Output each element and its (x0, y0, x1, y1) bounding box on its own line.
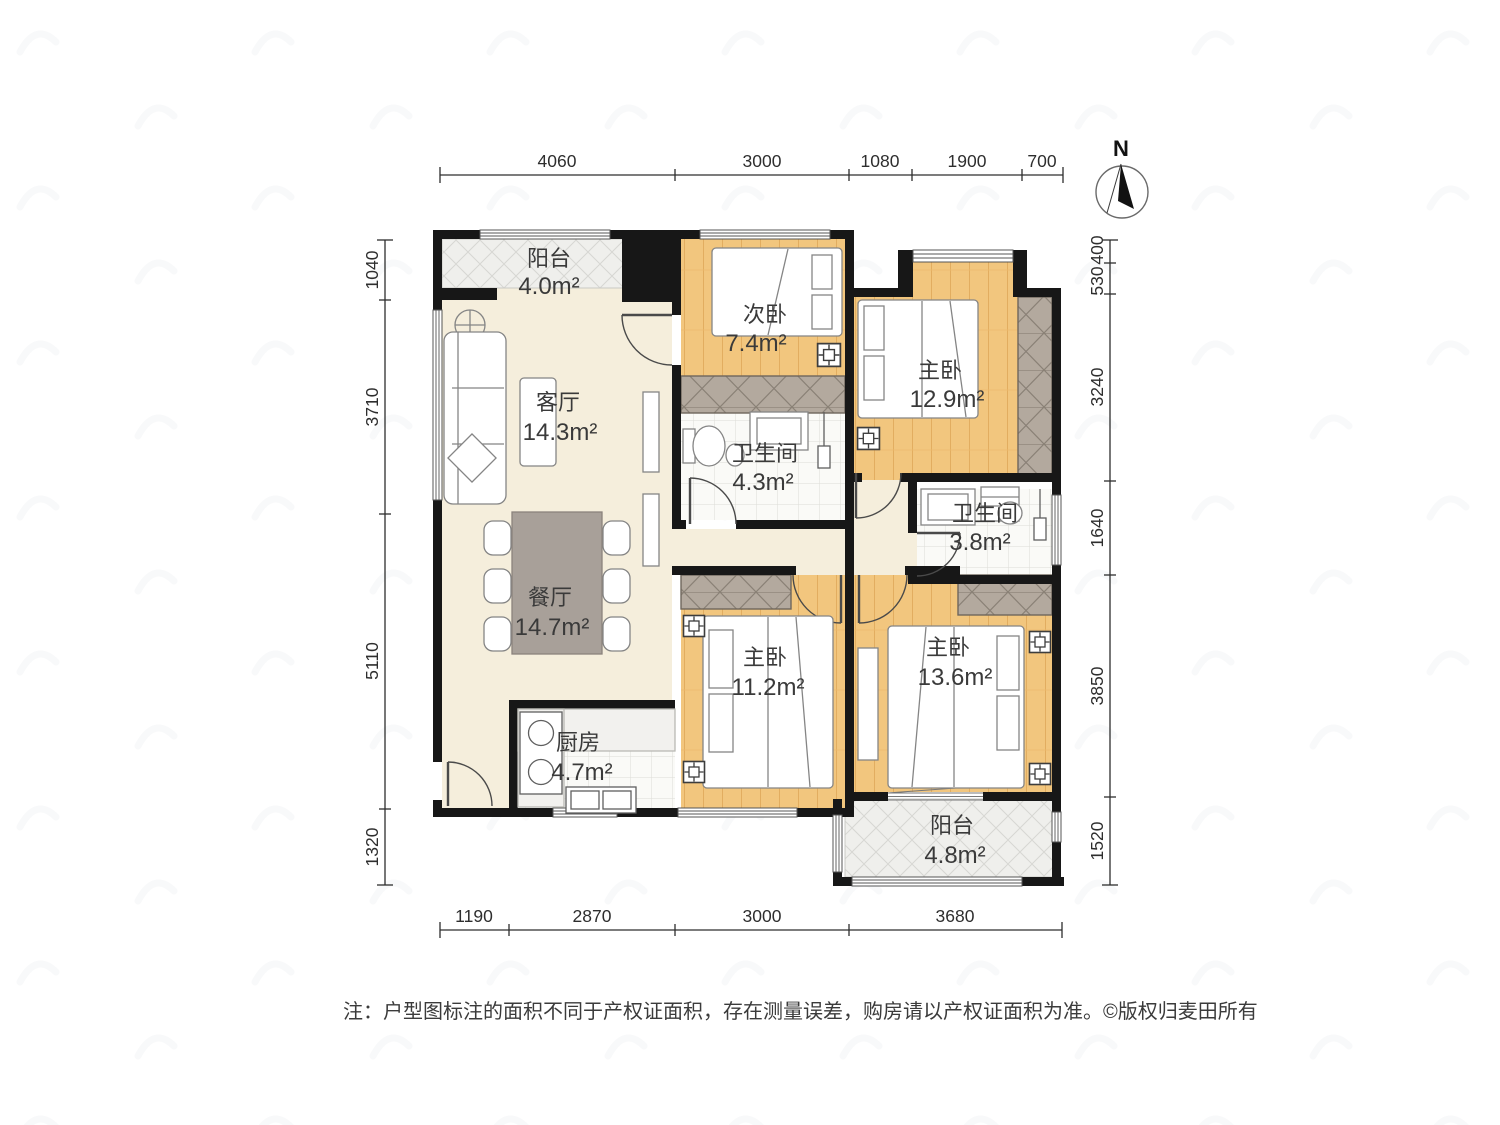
wardrobe-master-a (1018, 297, 1052, 480)
room-area-dining-room: 14.7m² (515, 614, 590, 641)
nightstand-icon (858, 428, 880, 450)
master-bedroom-a-baywindow-floor (913, 261, 1013, 301)
room-area-bathroom-a: 4.3m² (732, 469, 793, 496)
window-balcony-top (480, 230, 610, 239)
pillow (709, 630, 733, 688)
dresser (858, 648, 878, 760)
dim-left-1: 3710 (362, 387, 382, 426)
nightstand-icon (684, 616, 705, 637)
tv-cabinet (643, 392, 659, 472)
window-balcony-bottom-left (833, 815, 842, 872)
floor-plan-page: 阳台 4.0m² 次卧 7.4m² 主卧 12.9m² 客厅 14.3m² 卫生… (0, 0, 1500, 1125)
window-master-b (678, 808, 797, 817)
window-bathroom-b (1052, 495, 1061, 565)
nightstand-icon (818, 344, 841, 367)
dim-right-3: 1640 (1087, 508, 1107, 547)
room-label-balcony-bottom: 阳台 (930, 813, 974, 838)
room-area-balcony-top: 4.0m² (518, 273, 579, 300)
window-master-a-bay (913, 250, 1013, 262)
pillow (997, 696, 1019, 750)
dim-left-3: 1320 (362, 827, 382, 866)
copyright-note: ©版权归麦田所有 (1103, 995, 1258, 1024)
toilet-icon (693, 426, 725, 466)
wardrobe-master-b (681, 575, 791, 609)
dim-top-2: 1080 (861, 151, 900, 171)
dim-right-2: 3240 (1087, 367, 1107, 406)
dining-chair (484, 521, 511, 555)
dim-bottom-0: 1190 (455, 906, 493, 926)
footer: 注：户型图标注的面积不同于产权证面积，存在测量误差，购房请以产权证面积为准。 ©… (343, 995, 1155, 1024)
dining-chair (603, 569, 630, 603)
dining-chair (484, 569, 511, 603)
room-area-balcony-bottom: 4.8m² (924, 842, 985, 869)
room-area-master-a: 12.9m² (910, 386, 985, 413)
room-label-secondary-bedroom: 次卧 (743, 302, 787, 327)
pillow (812, 295, 832, 329)
wardrobe-secondary-bedroom (681, 376, 845, 413)
room-label-kitchen: 厨房 (556, 730, 600, 755)
disclaimer-note: 注：户型图标注的面积不同于产权证面积，存在测量误差，购房请以产权证面积为准。 (343, 995, 1103, 1024)
master-b-furniture (684, 616, 834, 789)
pillow (709, 694, 733, 752)
dim-top-0: 4060 (538, 151, 577, 171)
dim-bottom-3: 3680 (936, 906, 975, 926)
dim-right-4: 3850 (1087, 666, 1107, 705)
room-label-bathroom-b: 卫生间 (952, 501, 1018, 526)
room-label-living-room: 客厅 (536, 390, 580, 415)
dim-right-0: 400 (1087, 235, 1107, 264)
room-area-kitchen: 4.7m² (551, 759, 612, 786)
side-cabinet (643, 494, 659, 566)
room-label-master-c: 主卧 (926, 635, 970, 660)
dim-left-2: 5110 (362, 642, 382, 680)
pillow (812, 255, 832, 289)
dim-bottom-1: 2870 (573, 906, 612, 926)
shower-icon (1034, 518, 1046, 540)
window-secondary-bedroom (700, 230, 830, 239)
room-label-dining-room: 餐厅 (528, 585, 572, 610)
room-area-bathroom-b: 3.8m² (949, 529, 1010, 556)
dim-right-5: 1520 (1087, 821, 1107, 860)
dim-right-1: 530 (1087, 266, 1107, 295)
room-label-master-b: 主卧 (743, 645, 787, 670)
dining-chair (484, 617, 511, 651)
compass-north-label: N (1113, 136, 1129, 161)
pillow (997, 636, 1019, 690)
room-area-secondary-bedroom: 7.4m² (725, 330, 786, 357)
window-living-left (433, 310, 442, 500)
pillow (864, 306, 884, 350)
nightstand-icon (1030, 764, 1051, 785)
sofa (444, 332, 506, 504)
room-label-master-a: 主卧 (918, 358, 962, 383)
dining-chair (603, 521, 630, 555)
dim-top-1: 3000 (743, 151, 782, 171)
room-label-balcony-top: 阳台 (527, 246, 571, 271)
room-area-master-c: 13.6m² (918, 664, 993, 691)
dim-left-0: 1040 (362, 250, 382, 289)
nightstand-icon (684, 762, 705, 783)
room-label-bathroom-a: 卫生间 (732, 441, 798, 466)
hallway-floor-2 (854, 473, 908, 575)
pillow (864, 356, 884, 400)
floor-plan-drawing: 阳台 4.0m² 次卧 7.4m² 主卧 12.9m² 客厅 14.3m² 卫生… (0, 0, 1500, 1125)
shower-icon (818, 446, 830, 468)
dim-bottom-2: 3000 (743, 906, 782, 926)
room-area-master-b: 11.2m² (732, 674, 805, 701)
dim-top-4: 700 (1027, 151, 1056, 171)
dining-chair (603, 617, 630, 651)
nightstand-icon (1030, 632, 1051, 653)
window-balcony-bottom-right (1052, 812, 1061, 842)
window-balcony-bottom (852, 877, 1022, 886)
room-area-living-room: 14.3m² (523, 419, 598, 446)
dim-top-3: 1900 (948, 151, 987, 171)
